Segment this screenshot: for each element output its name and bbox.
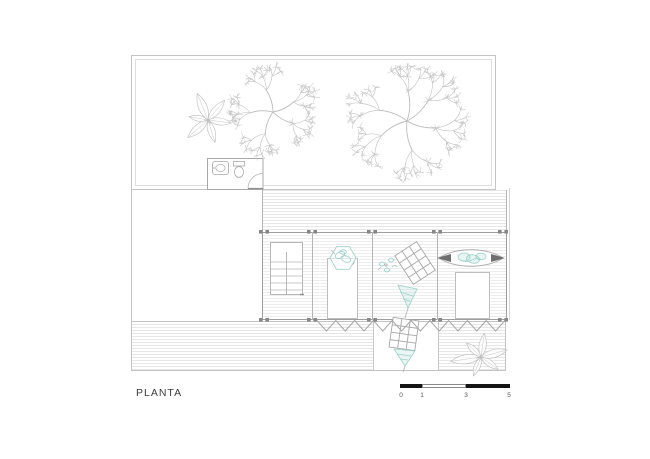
bathroom (208, 159, 264, 190)
hanging-chair-lower-icon (389, 317, 419, 372)
scale-tick-5: 5 (507, 392, 511, 399)
hanging-chair-icon (395, 242, 435, 318)
floor-plan-page: PLANTA 0 1 3 5 (0, 0, 650, 459)
plan-linework (0, 0, 650, 459)
bed-room4 (456, 273, 490, 319)
hammock-icon (437, 250, 505, 267)
small-plant-icon (378, 258, 397, 272)
stairs (271, 243, 305, 295)
plan-title: PLANTA (136, 387, 182, 399)
scale-bar-segment (400, 384, 422, 388)
scale-bar-segment (466, 384, 510, 388)
scale-tick-1: 1 (420, 392, 424, 399)
scale-bar-segment (422, 384, 466, 388)
scale-tick-3: 3 (464, 392, 468, 399)
scale-bar: 0 1 3 5 (400, 384, 510, 400)
scale-tick-0: 0 (399, 392, 403, 399)
toilet-icon (234, 162, 245, 178)
building-walls (132, 188, 510, 371)
sink-icon (213, 162, 229, 175)
palm-plant-icons (188, 93, 508, 376)
